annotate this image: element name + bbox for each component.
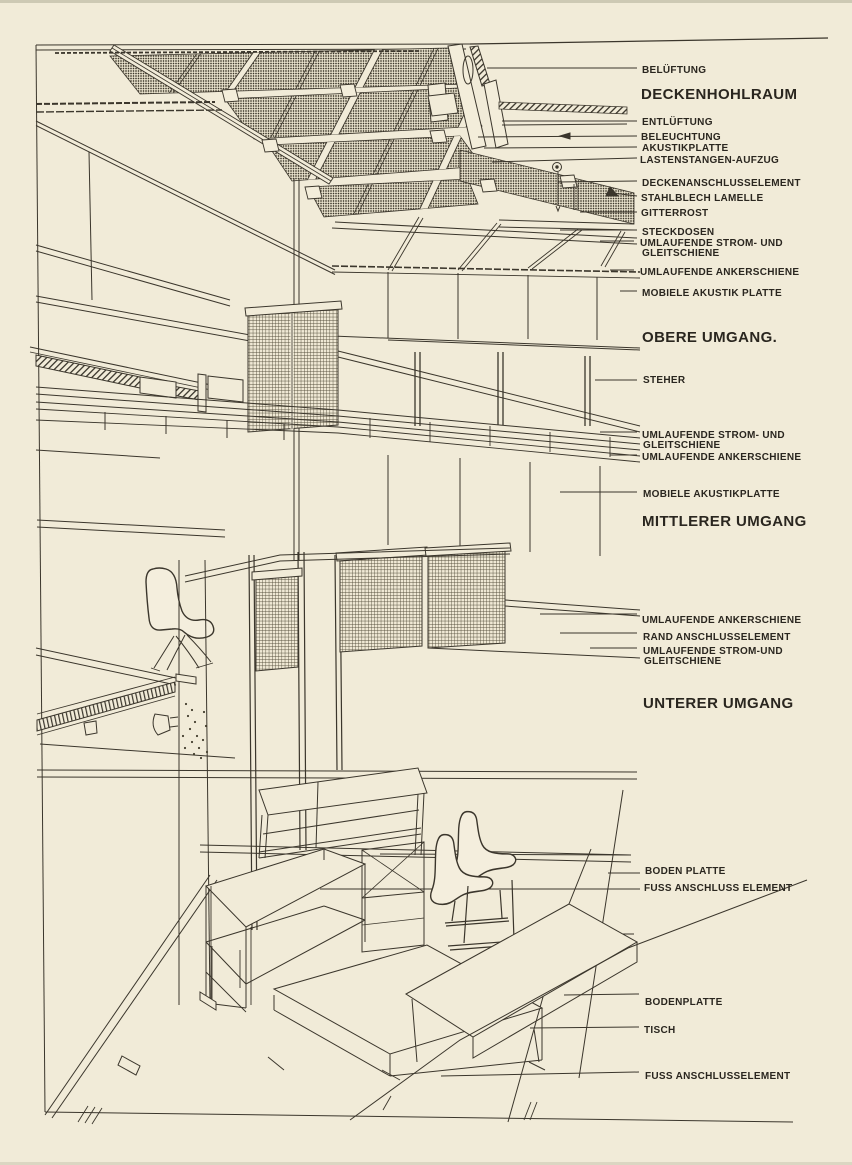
svg-text:STEHER: STEHER	[643, 375, 686, 386]
svg-text:UMLAUFENDE ANKERSCHIENE: UMLAUFENDE ANKERSCHIENE	[640, 267, 799, 278]
svg-text:GLEITSCHIENE: GLEITSCHIENE	[643, 440, 721, 451]
svg-text:BODEN PLATTE: BODEN PLATTE	[645, 866, 726, 877]
svg-text:ENTLÜFTUNG: ENTLÜFTUNG	[642, 115, 713, 128]
svg-text:OBERE UMGANG.: OBERE UMGANG.	[642, 329, 777, 346]
svg-text:FUSS ANSCHLUSSELEMENT: FUSS ANSCHLUSSELEMENT	[645, 1071, 790, 1082]
svg-text:MOBIELE AKUSTIKPLATTE: MOBIELE AKUSTIKPLATTE	[643, 489, 780, 500]
svg-text:GLEITSCHIENE: GLEITSCHIENE	[644, 656, 722, 667]
svg-text:BELÜFTUNG: BELÜFTUNG	[642, 63, 706, 76]
svg-text:GLEITSCHIENE: GLEITSCHIENE	[642, 248, 720, 259]
svg-text:DECKENHOHLRAUM: DECKENHOHLRAUM	[641, 86, 797, 103]
svg-text:DECKENANSCHLUSSELEMENT: DECKENANSCHLUSSELEMENT	[642, 178, 801, 189]
svg-text:UMLAUFENDE ANKERSCHIENE: UMLAUFENDE ANKERSCHIENE	[642, 452, 801, 463]
svg-text:STECKDOSEN: STECKDOSEN	[642, 227, 714, 238]
svg-text:BODENPLATTE: BODENPLATTE	[645, 997, 723, 1008]
svg-text:UMLAUFENDE ANKERSCHIENE: UMLAUFENDE ANKERSCHIENE	[642, 615, 801, 626]
svg-text:MITTLERER UMGANG: MITTLERER UMGANG	[642, 513, 807, 530]
svg-text:MOBIELE AKUSTIK PLATTE: MOBIELE AKUSTIK PLATTE	[642, 288, 782, 299]
svg-text:BELEUCHTUNG: BELEUCHTUNG	[641, 132, 721, 143]
svg-text:AKUSTIKPLATTE: AKUSTIKPLATTE	[642, 143, 729, 154]
svg-text:TISCH: TISCH	[644, 1025, 676, 1036]
svg-text:UNTERER UMGANG: UNTERER UMGANG	[643, 695, 794, 712]
svg-text:GITTERROST: GITTERROST	[641, 208, 708, 219]
svg-text:RAND ANSCHLUSSELEMENT: RAND ANSCHLUSSELEMENT	[643, 632, 791, 643]
svg-text:LASTENSTANGEN-AUFZUG: LASTENSTANGEN-AUFZUG	[640, 155, 779, 166]
svg-text:FUSS ANSCHLUSS ELEMENT: FUSS ANSCHLUSS ELEMENT	[644, 883, 792, 894]
svg-text:STAHLBLECH LAMELLE: STAHLBLECH LAMELLE	[641, 193, 763, 204]
